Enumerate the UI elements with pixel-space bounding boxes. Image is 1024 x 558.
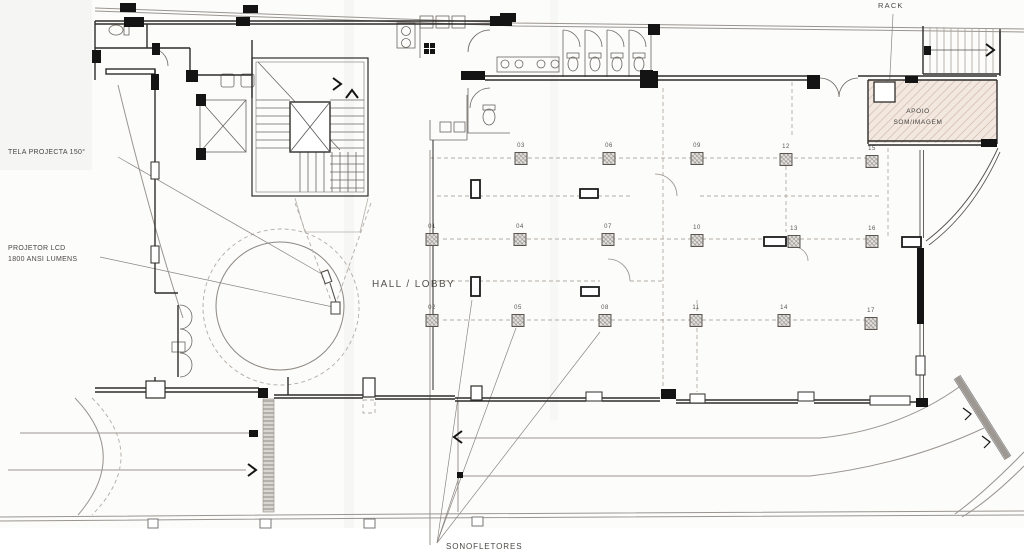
speaker-position-14: 14 [778, 304, 791, 327]
label-projetor-lumens: 1800 ANSI LUMENS [8, 256, 77, 263]
label-apoio-line1: APOIO [858, 106, 978, 117]
speaker-position-16: 16 [866, 225, 879, 248]
speaker-number: 09 [693, 142, 701, 150]
speaker-position-15: 15 [866, 145, 879, 168]
speaker-position-07: 07 [602, 223, 615, 246]
speaker-square-icon [602, 233, 615, 246]
speaker-square-icon [691, 152, 704, 165]
label-projetor-lcd: PROJETOR LCD [8, 245, 66, 252]
speaker-position-01: 01 [426, 223, 439, 246]
speaker-square-icon [512, 314, 525, 327]
plan-linework [0, 0, 1024, 558]
speaker-position-12: 12 [780, 143, 793, 166]
speaker-position-09: 09 [691, 142, 704, 165]
speaker-number: 04 [516, 223, 524, 231]
speaker-position-08: 08 [599, 304, 612, 327]
dashed-lines [92, 82, 888, 515]
speaker-number: 03 [517, 142, 525, 150]
speaker-square-icon [691, 234, 704, 247]
speaker-number: 13 [790, 225, 798, 233]
speaker-number: 12 [782, 143, 790, 151]
speaker-number: 11 [692, 304, 699, 312]
speaker-position-02: 02 [426, 304, 439, 327]
speaker-square-icon [603, 152, 616, 165]
speaker-number: 08 [601, 304, 609, 312]
speaker-square-icon [778, 314, 791, 327]
speaker-position-10: 10 [691, 224, 704, 247]
speaker-number: 06 [605, 142, 613, 150]
speaker-square-icon [515, 152, 528, 165]
speaker-square-icon [788, 235, 801, 248]
speaker-square-icon [866, 155, 879, 168]
label-apoio-som-imagem: APOIO SOM/IMAGEM [858, 106, 978, 128]
speaker-number: 02 [428, 304, 436, 312]
speaker-position-04: 04 [514, 223, 527, 246]
label-sonofletores: SONOFLETORES [446, 542, 522, 551]
floor-plan-scan: TELA PROJECTA 150° PROJETOR LCD 1800 ANS… [0, 0, 1024, 558]
label-apoio-line2: SOM/IMAGEM [858, 117, 978, 128]
label-hall-lobby: HALL / LOBBY [372, 279, 455, 290]
speaker-square-icon [426, 233, 439, 246]
speaker-position-11: 11 [690, 304, 703, 327]
speaker-position-13: 13 [788, 225, 801, 248]
speaker-square-icon [426, 314, 439, 327]
leader-lines [100, 14, 893, 543]
speaker-number: 17 [867, 307, 875, 315]
speaker-square-icon [780, 153, 793, 166]
speaker-number: 05 [514, 304, 522, 312]
speaker-square-icon [690, 314, 703, 327]
speaker-number: 14 [780, 304, 788, 312]
speaker-position-05: 05 [512, 304, 525, 327]
speaker-position-17: 17 [865, 307, 878, 330]
speaker-square-icon [866, 235, 879, 248]
speaker-number: 10 [693, 224, 701, 232]
speaker-square-icon [599, 314, 612, 327]
speaker-number: 07 [604, 223, 612, 231]
label-tela-projecta: TELA PROJECTA 150° [8, 149, 85, 156]
speaker-square-icon [865, 317, 878, 330]
speaker-position-03: 03 [515, 142, 528, 165]
label-rack: RACK [878, 1, 904, 10]
speaker-square-icon [514, 233, 527, 246]
speaker-position-06: 06 [603, 142, 616, 165]
speaker-number: 15 [868, 145, 876, 153]
speaker-number: 16 [868, 225, 876, 233]
speaker-number: 01 [428, 223, 436, 231]
